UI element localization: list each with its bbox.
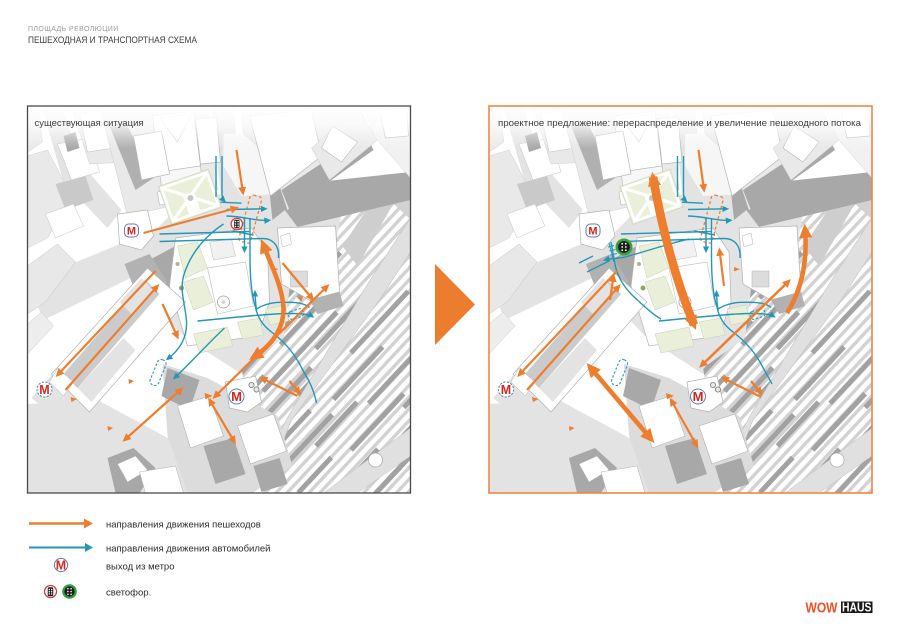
- svg-text:М: М: [693, 389, 704, 404]
- svg-text:М: М: [56, 559, 66, 573]
- svg-text:М: М: [588, 226, 597, 238]
- svg-text:М: М: [39, 383, 49, 397]
- svg-text:М: М: [127, 226, 136, 238]
- svg-text:WOW: WOW: [806, 601, 838, 617]
- svg-text:ПЕШЕХОДНАЯ И ТРАНСПОРТНАЯ СХЕМ: ПЕШЕХОДНАЯ И ТРАНСПОРТНАЯ СХЕМА: [28, 35, 198, 46]
- svg-text:проектное предложение: перерас: проектное предложение: перераспределение…: [498, 118, 862, 129]
- svg-text:HAUS: HAUS: [842, 601, 872, 615]
- svg-text:М: М: [501, 383, 511, 397]
- svg-text:выход из метро: выход из метро: [106, 562, 175, 573]
- svg-text:ПЛОЩАДЬ РЕВОЛЮЦИИ: ПЛОЩАДЬ РЕВОЛЮЦИИ: [28, 26, 119, 33]
- svg-text:существующая ситуация: существующая ситуация: [35, 118, 144, 129]
- svg-text:направления движения пешеходов: направления движения пешеходов: [106, 520, 261, 531]
- svg-text:М: М: [231, 389, 242, 404]
- svg-text:направления движения автомобил: направления движения автомобилей: [106, 544, 270, 555]
- svg-text:светофор.: светофор.: [106, 588, 151, 599]
